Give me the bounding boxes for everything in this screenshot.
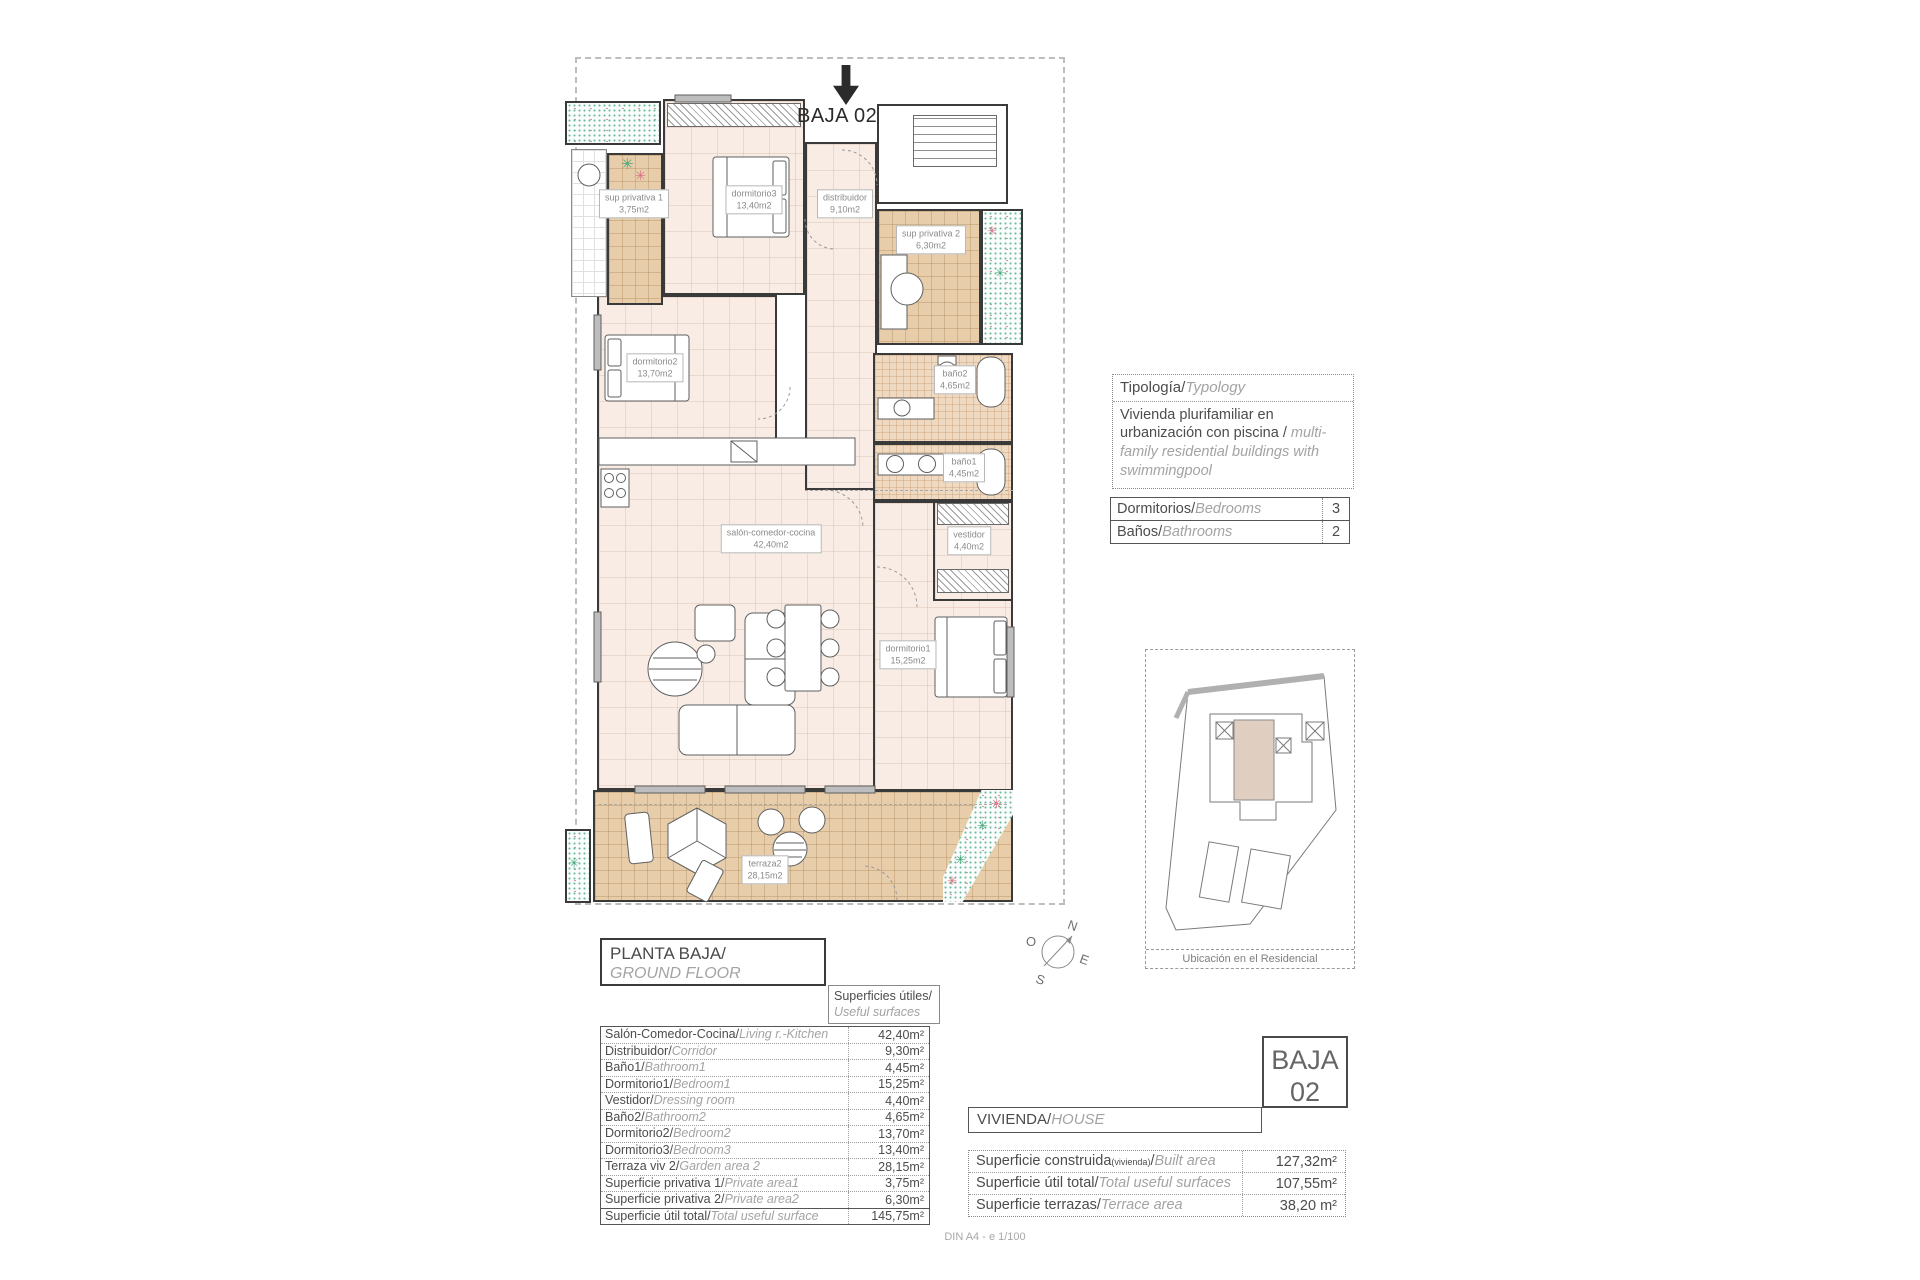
table-row: Dormitorio3/Bedroom313,40m² [601, 1142, 929, 1159]
table-row: Superficie privativa 2/Private area26,30… [601, 1191, 929, 1208]
unit-box-line2: 02 [1264, 1076, 1346, 1108]
compass-o: O [1026, 934, 1036, 949]
floor-title-en: GROUND FLOOR [610, 964, 824, 984]
terrace-projection-line [599, 804, 1007, 805]
floor-plan: ✳ ✳ ✳ ✳ ✳ ✳ ✳ ✳ ✳ BAJA 02 sup privativa … [575, 57, 1065, 905]
table-row: Superficie útil total/Total useful surfa… [969, 1172, 1345, 1194]
floor-title-es: PLANTA BAJA/ [610, 943, 824, 964]
table-row-total: Superficie útil total/Total useful surfa… [601, 1208, 929, 1225]
bathrooms-count: 2 [1322, 521, 1349, 543]
floor-title-box: PLANTA BAJA/ GROUND FLOOR [600, 938, 826, 986]
plant-icon: ✳ [621, 157, 634, 172]
plant-icon: ✳ [947, 875, 957, 887]
room-living-kitchen [597, 445, 877, 790]
room-label-dressing: vestidor4,40m2 [947, 526, 991, 555]
room-label-bedroom3: dormitorio313,40m2 [725, 185, 782, 214]
bathrooms-row: Baños/Bathrooms 2 [1111, 520, 1349, 543]
table-row: Distribuidor/Corridor9,30m² [601, 1043, 929, 1060]
plant-icon: ✳ [955, 853, 966, 866]
room-label-bedroom1: dormitorio115,25m2 [879, 640, 936, 669]
section-line [805, 490, 1013, 491]
wardrobe-dressing-bottom [937, 569, 1009, 593]
table-row: Superficie construida(vivienda)/Built ar… [969, 1151, 1345, 1172]
table-row: Salón-Comedor-Cocina/Living r.-Kitchen42… [601, 1027, 929, 1043]
useful-surfaces-header: Superficies útiles/Useful surfaces [828, 985, 940, 1024]
plant-icon: ✳ [987, 225, 997, 237]
room-bedroom2 [597, 295, 777, 445]
plant-icon: ✳ [569, 857, 579, 869]
house-bar: VIVIENDA/HOUSE [968, 1107, 1262, 1133]
table-row: Superficie terrazas/Terrace area 38,20 m… [969, 1194, 1345, 1216]
unit-box-line1: BAJA [1264, 1044, 1346, 1076]
table-row: Superficie privativa 1/Private area13,75… [601, 1175, 929, 1192]
stair-flight [913, 115, 997, 167]
site-plan-graphic [1146, 650, 1354, 949]
bedrooms-count: 3 [1322, 498, 1349, 520]
planter-top-left [565, 101, 661, 145]
useful-surfaces-table: Salón-Comedor-Cocina/Living r.-Kitchen42… [600, 1026, 930, 1225]
floorplan-sheet: ✳ ✳ ✳ ✳ ✳ ✳ ✳ ✳ ✳ BAJA 02 sup privativa … [0, 0, 1920, 1280]
plant-icon: ✳ [977, 819, 988, 832]
room-label-bedroom2: dormitorio213,70m2 [626, 353, 683, 382]
room-label-private1: sup privativa 13,75m2 [599, 189, 669, 218]
room-label-terrace2: terraza228,15m2 [741, 855, 788, 884]
typology-box: Tipología/Typology Vivienda plurifamilia… [1112, 374, 1354, 489]
table-row: Terraza viv 2/Garden area 228,15m² [601, 1158, 929, 1175]
wardrobe-dressing-top [937, 503, 1009, 525]
room-label-private2: sup privativa 26,30m2 [896, 225, 966, 254]
bedrooms-row: Dormitorios/Bedrooms 3 [1111, 498, 1349, 520]
rooms-count-table: Dormitorios/Bedrooms 3 Baños/Bathrooms 2 [1110, 497, 1350, 544]
room-label-living: salón-comedor-cocina42,40m2 [721, 524, 822, 553]
room-label-corridor: distribuidor9,10m2 [817, 189, 873, 218]
plan-unit-label: BAJA 02 [797, 105, 877, 128]
table-row: Baño1/Bathroom14,45m² [601, 1059, 929, 1076]
plant-icon: ✳ [995, 267, 1005, 279]
unit-number-box: BAJA 02 [1262, 1036, 1348, 1108]
site-location-box: Ubicación en el Residencial [1145, 649, 1355, 969]
table-row: Dormitorio1/Bedroom115,25m² [601, 1076, 929, 1093]
typology-body: Vivienda plurifamiliar en urbanización c… [1113, 402, 1353, 488]
table-row: Baño2/Bathroom24,65m² [601, 1109, 929, 1126]
exterior-tiles-left [571, 149, 607, 297]
room-label-bathroom1: baño14,45m2 [943, 453, 985, 482]
plant-icon: ✳ [991, 797, 1002, 810]
summary-table: Superficie construida(vivienda)/Built ar… [968, 1150, 1346, 1217]
table-row: Vestidor/Dressing room4,40m² [601, 1092, 929, 1109]
scale-note: DIN A4 - e 1/100 [900, 1231, 1070, 1243]
site-plan-caption: Ubicación en el Residencial [1146, 949, 1354, 968]
compass-rose: N O E S [1020, 912, 1096, 988]
typology-header: Tipología/Typology [1113, 375, 1353, 402]
room-label-bathroom2: baño24,65m2 [934, 365, 976, 394]
wardrobe-bedroom3 [667, 103, 801, 127]
table-row: Dormitorio2/Bedroom213,70m² [601, 1125, 929, 1142]
plant-icon: ✳ [635, 169, 646, 182]
